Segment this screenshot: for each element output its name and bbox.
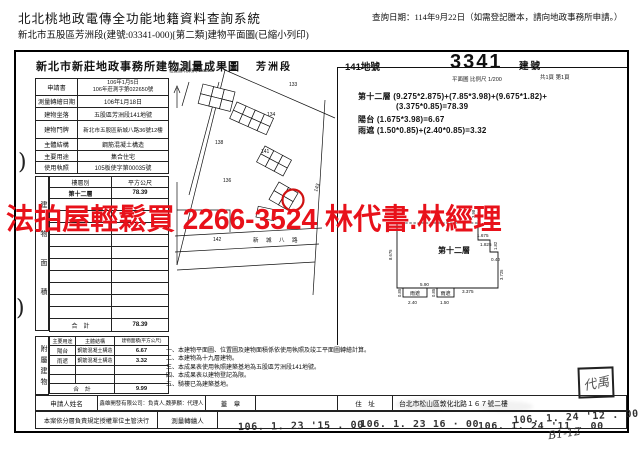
document-subtitle: 新北市五股區芳洲段(建號:03341-000)[第二類]建物平面圖(已縮小列印) <box>18 27 309 41</box>
info-value: 集合住宅 <box>78 151 169 162</box>
empty-cell <box>112 247 169 259</box>
empty-cell <box>76 375 115 384</box>
building-info-table: 申請書 106年1月5日 106年莊測字第022650號 測量轉繪日期 106年… <box>35 78 169 174</box>
applicant-value: 鑫雄開發有限公司：負責人,魏夢麟：代理人 <box>98 396 206 410</box>
building-footprints <box>198 84 235 111</box>
system-title: 北北桃地政電傳全功能地籍資料查詢系統 <box>18 8 261 27</box>
info-value: 105板使字第00035號 <box>78 162 169 174</box>
parcel-label: 143 <box>313 183 321 193</box>
canopy-label: 雨遮 <box>440 290 450 297</box>
parcel-label: 136 <box>223 178 232 184</box>
address-label: 住 址 <box>338 396 393 410</box>
annex-area: 3.32 <box>115 356 169 366</box>
annex-col-area: 建物面積(平方公尺) <box>115 337 169 346</box>
info-value: 106年1月18日 <box>78 96 169 108</box>
info-label: 主要用途 <box>36 151 78 162</box>
note-line: 一、本建物平面圖、位置圖及建物面積係依使用執照及竣工平面圖轉繪計算。 <box>166 347 488 355</box>
handwritten-bracket: ) <box>16 296 25 321</box>
parcel-label: 133 <box>289 82 298 88</box>
info-value: 五股區芳洲段141地號 <box>78 108 169 121</box>
dimension-label: 2.40 <box>408 300 417 305</box>
annex-structure: 鋼筋混凝土構造 <box>76 356 115 366</box>
floor-plan-label: 第十二層 <box>438 245 470 255</box>
note-line: 五、騎樓已為建築基地。 <box>166 381 488 389</box>
road-edge-line <box>175 244 319 252</box>
document-page: 北北桃地政電傳全功能地籍資料查詢系統 新北市五股區芳洲段(建號:03341-00… <box>0 0 640 454</box>
info-label: 測量轉繪日期 <box>36 96 78 108</box>
realtor-watermark-text: 法拍屋輕鬆買 2266-3524 林代書.林經理 <box>6 196 619 238</box>
applicant-row: 申請人姓名 鑫雄開發有限公司：負責人,魏夢麟：代理人 蓋 章 住 址 台北市松山… <box>35 395 627 411</box>
annex-col-use: 主要用途 <box>50 337 76 346</box>
note-line: 三、本成果表使用執照建築基地為五股區芳洲段141地號。 <box>166 364 488 372</box>
empty-cell <box>76 366 115 375</box>
handwritten-bracket: ) <box>18 150 27 175</box>
dimension-label: 3.375 <box>462 289 474 294</box>
empty-cell <box>112 271 169 283</box>
dimension-label: 1.82 <box>493 241 498 250</box>
header-divider-line <box>337 67 627 68</box>
empty-cell <box>115 366 169 375</box>
annex-use: 陽台 <box>50 346 76 356</box>
map-scale-label: 位置圖 比例尺 1/3000 <box>169 67 213 74</box>
building-footprints <box>230 102 274 135</box>
info-value: 新北市五股區新城八路36號12樓 <box>78 121 169 139</box>
empty-cell <box>112 295 169 307</box>
floor-col-header: 樓層別 <box>50 177 112 188</box>
info-label: 建物坐落 <box>36 108 78 121</box>
empty-cell <box>50 247 112 259</box>
info-label: 主體結構 <box>36 139 78 151</box>
info-label: 建物門牌 <box>36 121 78 139</box>
empty-cell <box>50 283 112 295</box>
empty-cell <box>112 283 169 295</box>
dimension-label: 1.50 <box>440 300 449 305</box>
page-count-note: 共1頁 第1頁 <box>540 73 570 81</box>
empty-cell <box>50 366 76 375</box>
plan-scale-note: 平面圖 比例尺 1/200 <box>452 75 502 83</box>
north-arrow-icon <box>174 82 189 108</box>
query-date: 查詢日期：114年9月22日（如需登記謄本，請向地政事務所申請。） <box>372 11 622 23</box>
datetime-stamp: 106. 1. 23 16 · 00 <box>360 419 479 430</box>
empty-cell <box>50 271 112 283</box>
parcel-label: 138 <box>215 140 224 146</box>
area-formula-line: 第十二層 (9.275*2.875)+(7.85*3.98)+(9.675*1.… <box>358 91 547 102</box>
dimension-label: 0.40 <box>491 257 500 262</box>
land-number: 141地號 <box>345 59 380 73</box>
building-number: 3341 <box>450 51 503 74</box>
dimension-label: 8.675 <box>388 249 393 260</box>
area-formula-line: 雨遮 (1.50*0.85)+(2.40*0.85)=3.32 <box>358 125 487 136</box>
ink-smudge <box>478 401 533 412</box>
corner-seal-stamp: 代禹 <box>577 366 614 398</box>
seal-label: 蓋 章 <box>206 396 256 410</box>
empty-cell <box>50 307 112 319</box>
ink-smudge <box>395 398 465 411</box>
empty-cell <box>112 259 169 271</box>
annex-vertical-label: 附屬建物 <box>35 336 49 395</box>
note-line: 二、本建物為十九層建物。 <box>166 355 488 363</box>
parcel-label: 134 <box>267 112 276 118</box>
boundary-line <box>177 262 315 270</box>
corner-seal-text: 代禹 <box>582 371 611 394</box>
area-formula-line: (3.375*0.85)=78.39 <box>396 102 468 111</box>
annex-total-value: 9.99 <box>115 384 169 394</box>
parcel-label: 141 <box>261 149 270 155</box>
applicant-label: 申請人姓名 <box>36 396 98 410</box>
empty-cell <box>112 307 169 319</box>
empty-cell <box>50 295 112 307</box>
notes-block: 一、本建物平面圖、位置圖及建物面積係依使用執照及竣工平面圖轉繪計算。 二、本建物… <box>166 347 488 389</box>
annex-structure: 鋼筋混凝土構造 <box>76 346 115 356</box>
building-number-label: 建號 <box>519 58 542 72</box>
area-formula-line: 陽台 (1.675*3.98)=6.67 <box>358 114 445 125</box>
approval-label: 本案依分層負責規定授權單位主管決行 <box>36 412 158 428</box>
floor-total-label: 合 計 <box>50 319 112 332</box>
info-label: 申請書 <box>36 79 78 96</box>
dimension-label: 5.90 <box>420 282 429 287</box>
info-value: 106年1月5日 106年莊測字第022650號 <box>78 79 169 96</box>
canopy-label: 雨遮 <box>410 290 420 297</box>
annex-col-structure: 主體結構 <box>76 337 115 346</box>
annex-area: 6.67 <box>115 346 169 356</box>
dimension-label: 0.85 <box>431 288 436 297</box>
dimension-label: 0.85 <box>397 288 402 297</box>
annex-total-label: 合 計 <box>50 384 115 394</box>
empty-cell <box>115 375 169 384</box>
datetime-stamp: 106. 1. 23 '15 . 00 <box>238 420 364 433</box>
floor-total-value: 78.39 <box>112 319 169 332</box>
dimension-label: 1.825 <box>480 242 492 247</box>
annex-table: 主要用途 主體結構 建物面積(平方公尺) 陽台 鋼筋混凝土構造 6.67 雨遮 … <box>49 336 169 394</box>
area-col-header: 平方公尺 <box>112 177 169 188</box>
note-line: 四、本成果表以建物登記為限。 <box>166 372 488 380</box>
dimension-label: 3.725 <box>499 269 504 280</box>
empty-cell <box>50 375 76 384</box>
info-value: 鋼筋混凝土構造 <box>78 139 169 151</box>
empty-cell <box>50 259 112 271</box>
info-label: 使用執照 <box>36 162 78 174</box>
surveyor-label: 測量轉繪人 <box>158 412 218 428</box>
annex-use: 雨遮 <box>50 356 76 366</box>
seal-empty-cell <box>256 396 338 410</box>
